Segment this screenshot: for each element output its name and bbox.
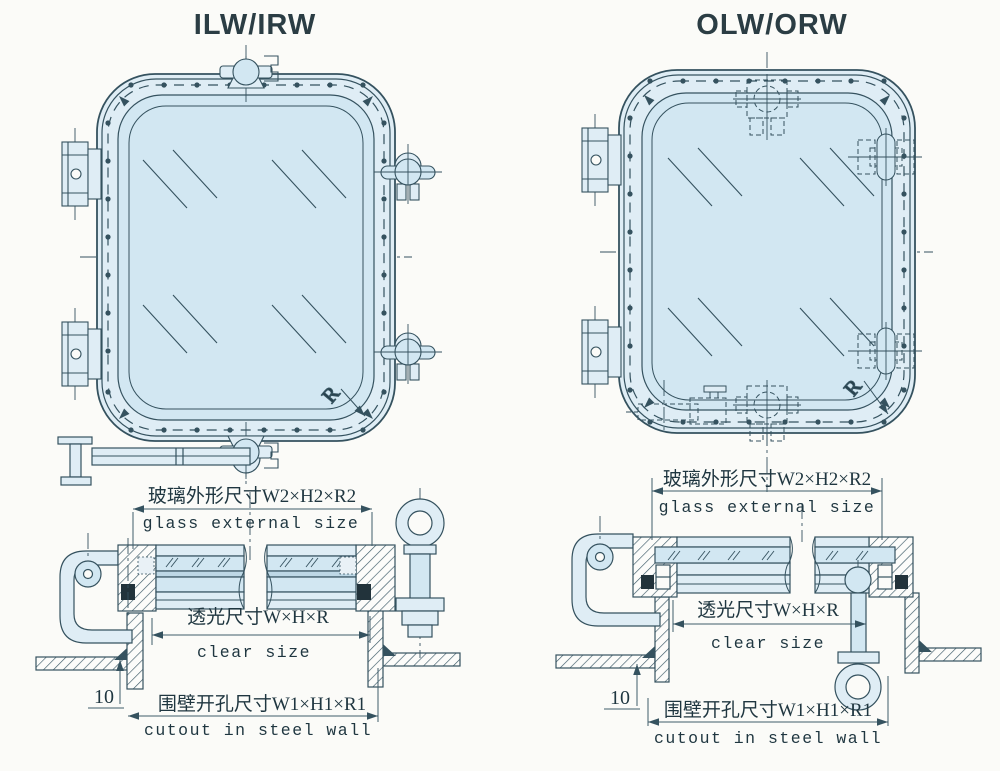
rubber-gasket xyxy=(357,584,371,600)
dim-clear-zh: 透光尺寸W×H×R xyxy=(187,606,329,628)
steel-wall xyxy=(556,655,655,668)
dim-wall-offset: 10 xyxy=(94,686,114,708)
dim-glass-external-zh: 玻璃外形尺寸W2×H2×R2 xyxy=(663,468,871,490)
right-view-title: OLW/ORW xyxy=(696,9,847,41)
rubber-gasket xyxy=(895,575,908,589)
olw-front-view: R xyxy=(582,52,933,492)
hinge-icon xyxy=(62,128,101,220)
hinge-icon xyxy=(582,306,621,398)
ilw-front-view: R xyxy=(58,45,442,488)
technical-drawing: R ILW/IRW xyxy=(0,0,1000,771)
dim-clear-zh: 透光尺寸W×H×R xyxy=(697,599,839,621)
eye-bolt xyxy=(396,488,444,658)
window-glass xyxy=(118,95,374,420)
dim-glass-external-zh: 玻璃外形尺寸W2×H2×R2 xyxy=(148,485,356,507)
dim-cutout-zh: 围壁开孔尺寸W1×H1×R1 xyxy=(664,699,872,721)
dim-clear-en: clear size xyxy=(711,634,825,653)
glass-section xyxy=(121,538,371,615)
dim-clear-en: clear size xyxy=(197,643,311,662)
dim-cutout-en: cutout in steel wall xyxy=(654,729,882,748)
frame-section xyxy=(356,545,395,611)
steel-wall xyxy=(905,593,919,673)
dim-glass-external-en: glass external size xyxy=(143,514,360,533)
drawing-sheet: R ILW/IRW xyxy=(0,0,1000,771)
hinge-icon xyxy=(582,114,621,206)
hinge-icon xyxy=(62,308,101,400)
steel-wall xyxy=(127,613,143,689)
dim-cutout-zh: 围壁开孔尺寸W1×H1×R1 xyxy=(158,693,366,715)
steel-wall xyxy=(36,657,127,670)
handle-bar xyxy=(58,437,250,485)
dim-wall-offset: 10 xyxy=(610,687,630,709)
steel-wall xyxy=(655,597,669,682)
rubber-gasket xyxy=(641,575,654,589)
dim-glass-external-en: glass external size xyxy=(659,498,876,517)
frame-section xyxy=(118,545,156,611)
window-glass xyxy=(642,93,892,410)
left-view-title: ILW/IRW xyxy=(194,9,316,41)
dim-cutout-en: cutout in steel wall xyxy=(144,721,372,740)
